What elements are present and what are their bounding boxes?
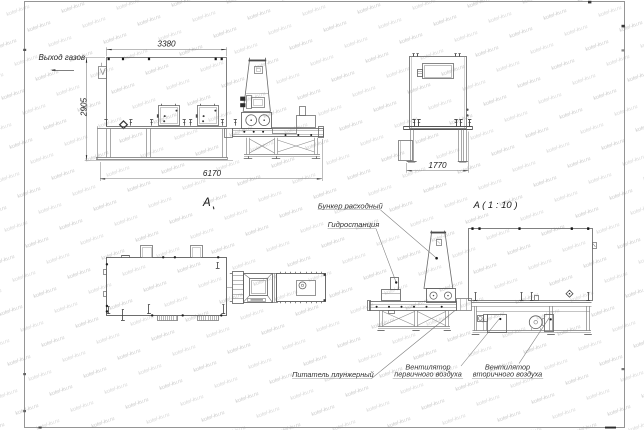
svg-text:первичного воздуха: первичного воздуха [394,370,462,379]
svg-text:A: A [202,197,211,209]
svg-text:Гидростанция: Гидростанция [328,220,380,229]
svg-text:Выход газов: Выход газов [39,53,86,62]
svg-text:1770: 1770 [428,161,447,170]
svg-text:Питатель плунжерный: Питатель плунжерный [292,370,374,379]
svg-text:A ( 1 : 10 ): A ( 1 : 10 ) [473,200,518,211]
svg-text:2905: 2905 [80,97,89,117]
svg-text:Бункер расходный: Бункер расходный [318,201,384,210]
svg-text:6170: 6170 [203,169,222,178]
svg-text:вторичного воздуха: вторичного воздуха [473,370,543,379]
svg-text:3380: 3380 [157,40,176,49]
